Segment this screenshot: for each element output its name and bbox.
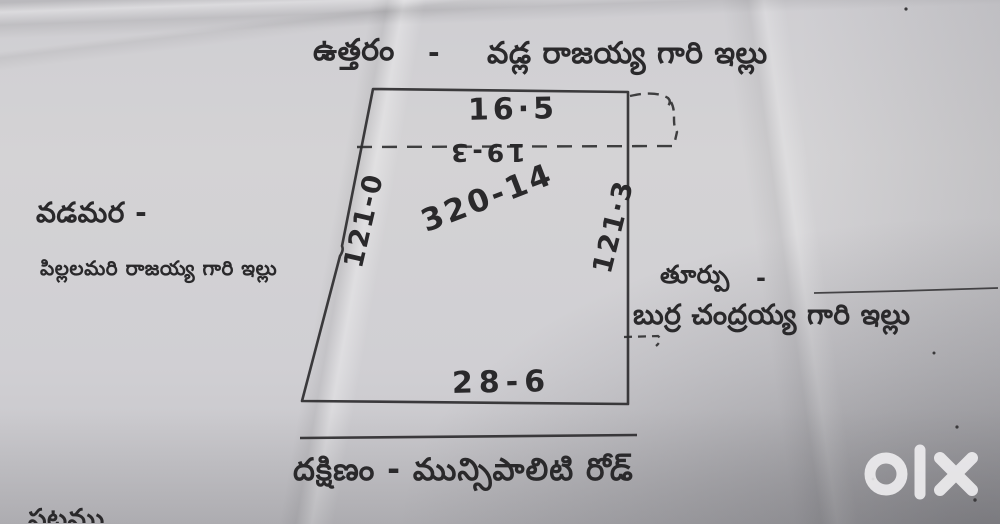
measurement-inner-width: 19-3 <box>447 138 526 167</box>
east-neighbor-label: బుర్ర చంద్రయ్య గారి ఇల్లు <box>633 298 911 338</box>
annexe-dashed-top <box>630 94 670 107</box>
bottom-cropped-text: పటము <box>28 504 105 523</box>
olx-watermark <box>862 436 988 506</box>
ink-speck <box>933 352 936 355</box>
west-neighbor-label: పిల్లలమరి రాజయ్య గారి ఇల్లు <box>40 256 277 285</box>
west-direction-label: వడమర - <box>36 196 147 236</box>
north-neighbor-label: వడ్ల రాజయ్య గారి ఇల్లు <box>487 36 768 78</box>
north-direction-label: ఉత్తరం <box>313 33 395 75</box>
olx-logo-icon <box>862 436 988 502</box>
ink-speck <box>955 425 958 428</box>
road-line <box>300 435 637 438</box>
measurement-bottom-width: 28-6 <box>452 364 552 401</box>
ink-speck <box>904 7 907 10</box>
east-dash: - <box>756 264 766 292</box>
east-overline <box>814 288 998 293</box>
east-direction-label: తూర్పు <box>660 260 730 296</box>
north-dash: - <box>428 36 440 69</box>
south-road-label: దక్షిణం - మున్సిపాలిటి రోడ్ <box>293 452 634 495</box>
measurement-top-width: 16·5 <box>468 91 559 128</box>
annexe-dashed-right <box>671 102 677 145</box>
